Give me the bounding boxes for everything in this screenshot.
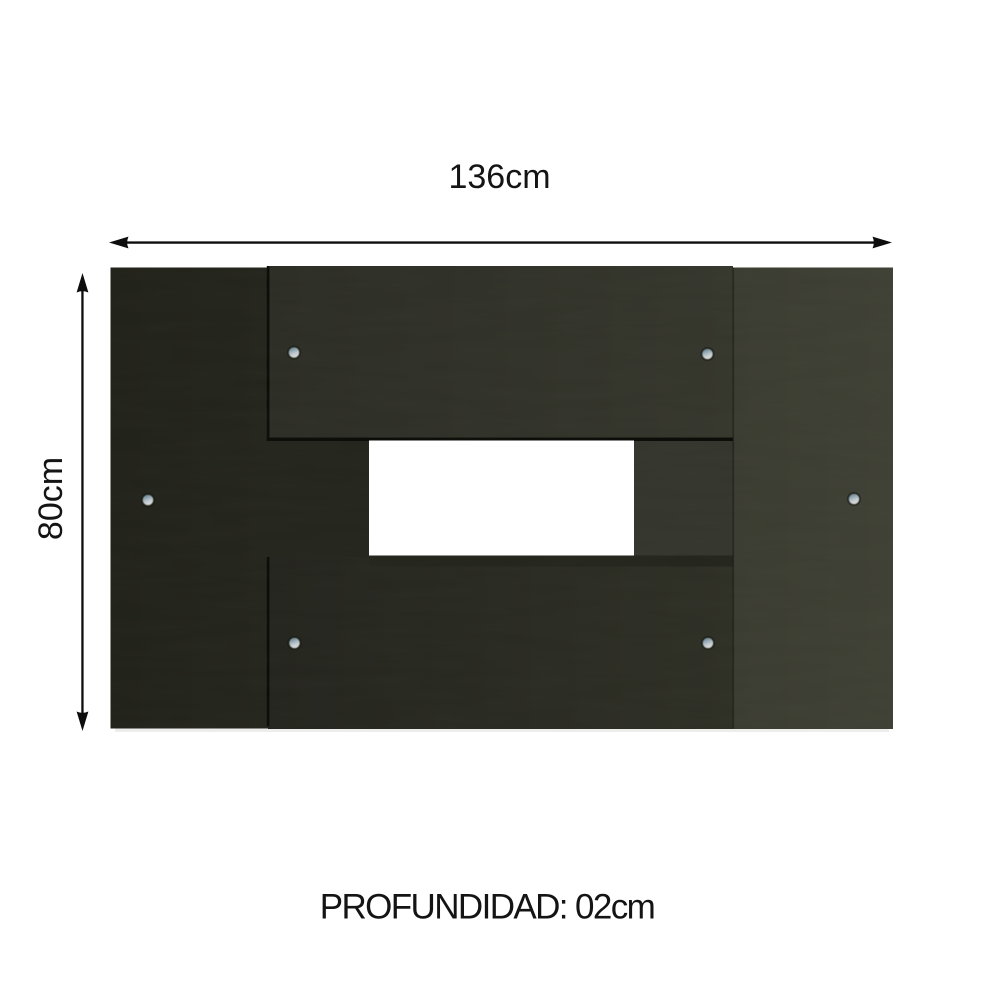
svg-text:136cm: 136cm: [448, 158, 550, 196]
svg-text:PROFUNDIDAD: 02cm: PROFUNDIDAD: 02cm: [320, 888, 655, 927]
svg-text:80cm: 80cm: [32, 457, 70, 540]
